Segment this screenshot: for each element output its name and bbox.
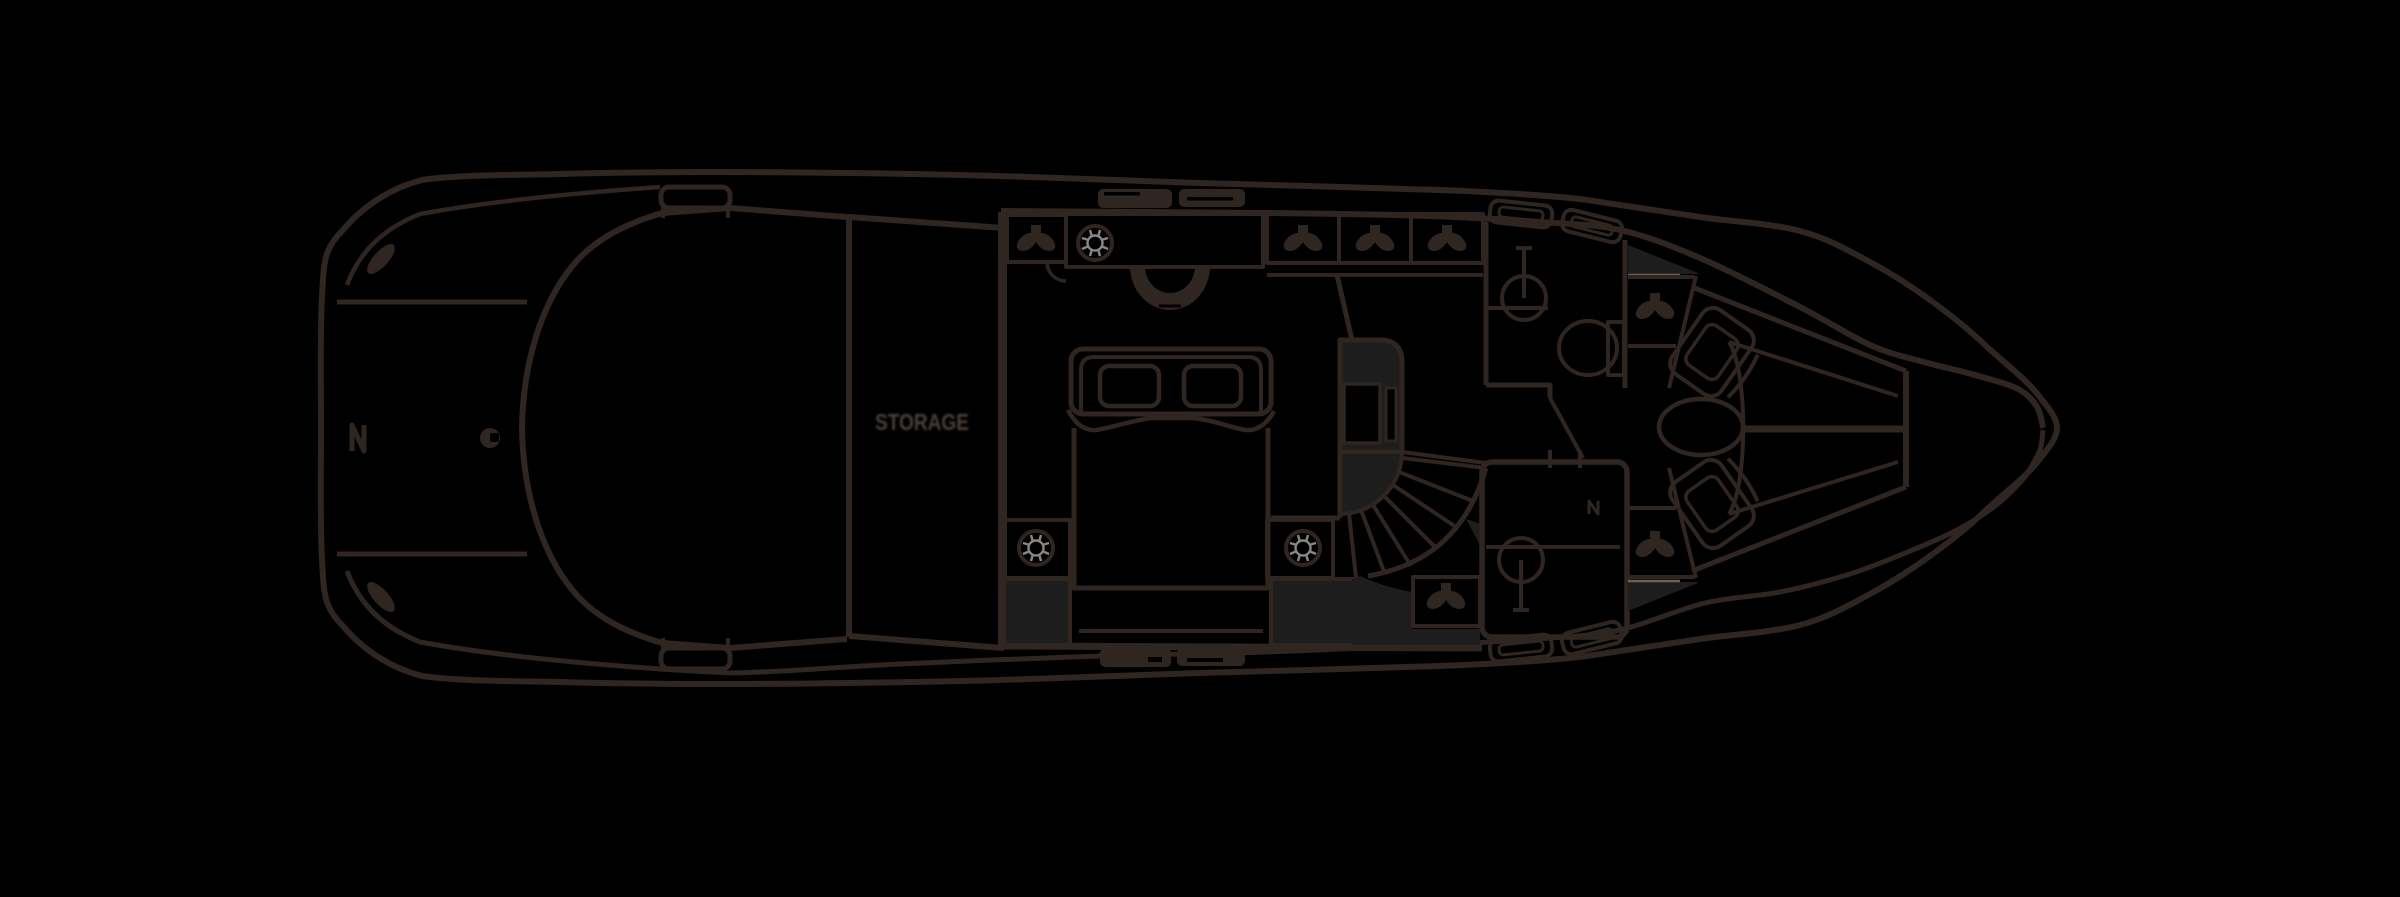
svg-text:STORAGE: STORAGE — [875, 409, 969, 435]
